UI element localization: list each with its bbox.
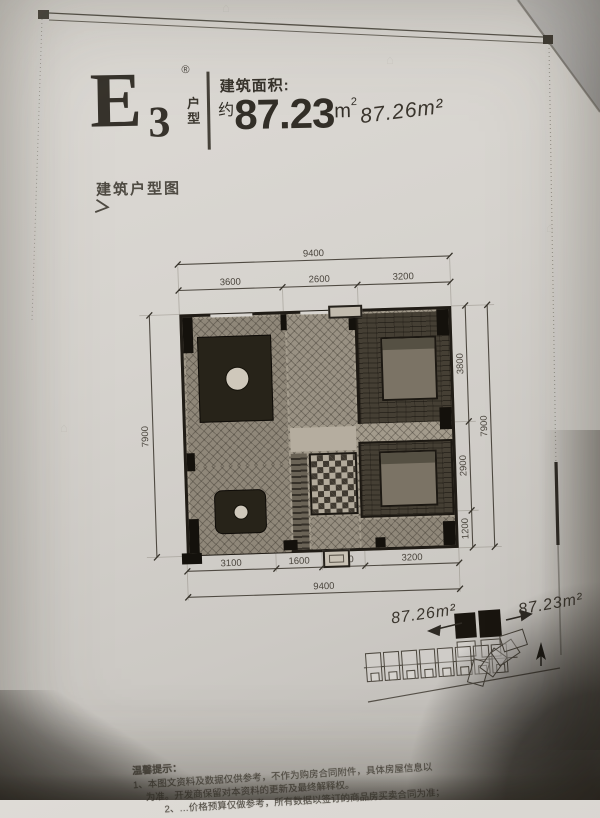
wall-pier (280, 314, 286, 330)
header-divider (206, 72, 210, 150)
dim-top-total: 9400 (303, 248, 324, 260)
coffee-table-icon (225, 366, 250, 391)
site-road-line (368, 668, 560, 702)
wall-pier (182, 553, 202, 565)
sofa-icon (197, 335, 274, 423)
wall-pier (189, 519, 200, 553)
wall-pier (283, 540, 297, 550)
ac-platform-inner (329, 554, 344, 562)
bed-icon (380, 335, 438, 401)
bay-window (328, 305, 362, 319)
utility-space (311, 516, 360, 549)
floor-plan-figure: 9400 3600 2600 3200 7900 3800 2900 1200 … (122, 238, 525, 622)
dim-top-2: 2600 (309, 274, 330, 286)
wall-pier (187, 453, 196, 471)
registered-mark: ® (181, 64, 189, 76)
wall-pier (443, 521, 456, 545)
dim-right-total: 7900 (479, 415, 491, 436)
dim-top-3: 3200 (392, 271, 413, 283)
ac-platform (323, 549, 351, 568)
area-unit-sup: 2 (351, 96, 357, 108)
floor-plan-drawing (179, 306, 458, 556)
area-approx-prefix: 约 (218, 102, 234, 119)
unit-type-label: 户型 (187, 96, 203, 126)
dim-top-1: 3600 (220, 277, 241, 289)
kitchen-counter (291, 454, 310, 550)
wall-pier (436, 309, 449, 335)
dim-right-3: 1200 (460, 518, 472, 539)
wall-pier (375, 537, 385, 547)
area-value: 87.23 (234, 89, 335, 138)
room-bedroom-second (358, 439, 454, 518)
room-study (286, 314, 355, 426)
dim-right-1: 3800 (455, 353, 467, 374)
site-annotations (355, 590, 600, 720)
chevron-right-icon: ＞ (93, 192, 113, 219)
dim-bottom-2: 1600 (288, 556, 309, 568)
dim-bottom-4: 3200 (401, 552, 422, 564)
dim-bottom-1: 3100 (220, 558, 241, 570)
photo-of-floorplan-document: { "photo": { "watermark_glyph": "⌂" }, "… (0, 0, 600, 800)
dim-right-2: 2900 (458, 455, 470, 476)
table-center (233, 504, 248, 519)
wall-pier (439, 407, 452, 429)
bed-icon (379, 449, 439, 507)
dim-bottom-total: 9400 (313, 581, 334, 593)
unit-code-number: 3 (148, 96, 171, 147)
area-unit: m (334, 100, 351, 122)
area-value-row: 约87.23m2 (218, 89, 358, 139)
dim-left-total: 7900 (140, 426, 152, 447)
hallway (290, 426, 357, 452)
dining-table-icon (214, 489, 267, 535)
unit-header: E 3 ® 户型 建筑面积: 约87.23m2 (89, 54, 511, 151)
wall-pier (182, 317, 193, 353)
north-arrow-icon (536, 642, 546, 666)
bathroom (309, 452, 359, 515)
unit-code-letter: E (89, 61, 142, 140)
